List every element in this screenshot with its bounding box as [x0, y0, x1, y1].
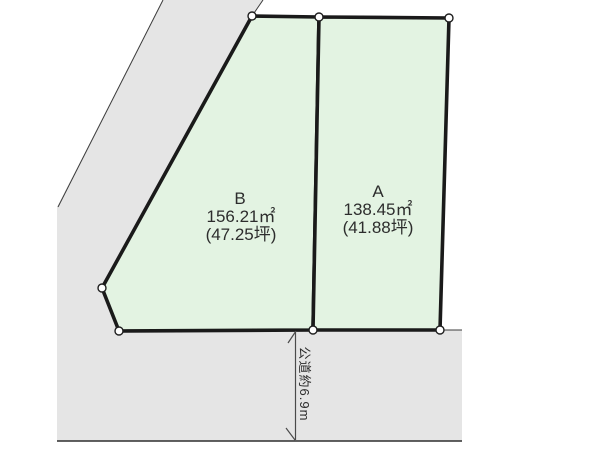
plot-b-area-sqm: 156.21㎡ [207, 207, 276, 226]
vertex-dot [98, 284, 106, 292]
plot-b-area-tsubo: (47.25坪) [206, 225, 277, 244]
plot-a-id: A [372, 182, 384, 201]
land-plot-diagram: 公道約6.9m B 156.21㎡ (47.25坪) A 138.45㎡ (41… [0, 0, 600, 450]
vertex-dot [436, 326, 444, 334]
diagram-canvas: 公道約6.9m B 156.21㎡ (47.25坪) A 138.45㎡ (41… [0, 0, 600, 450]
vertex-dot [248, 12, 256, 20]
vertex-dot [445, 14, 453, 22]
plot-a-area-sqm: 138.45㎡ [344, 200, 413, 219]
road-width-label: 公道約6.9m [297, 347, 312, 422]
vertex-dot [315, 13, 323, 21]
vertex-dot [115, 327, 123, 335]
vertex-dot [309, 326, 317, 334]
plot-a-area-tsubo: (41.88坪) [343, 218, 414, 237]
plot-b-id: B [234, 189, 245, 208]
plot-a-region [313, 17, 449, 330]
